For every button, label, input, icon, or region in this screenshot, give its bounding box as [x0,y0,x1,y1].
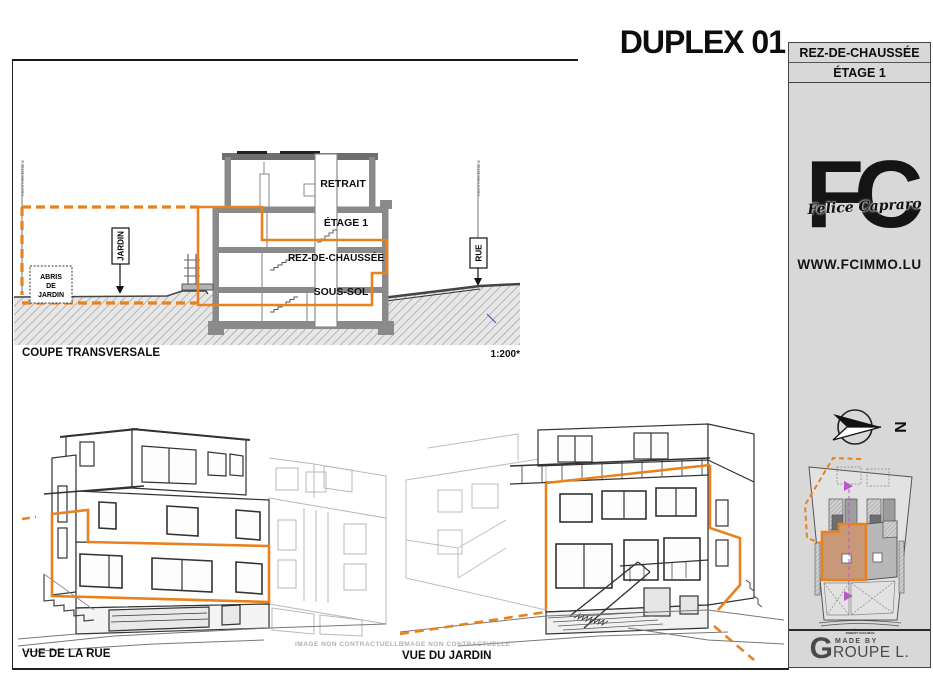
section-caption: COUPE TRANSVERSALE [22,347,160,359]
groupe-l-logo: G MADE BY ROUPE L. [789,629,930,667]
garden-shed-box: ABRIS DE JARDIN [30,266,72,303]
street-annotation: RUE [470,238,487,286]
garden-view-watermark: IMAGE NON CONTRACTUELLE [402,641,511,648]
duplex-unit-footprint [822,524,866,580]
groupe-l-initial: G [810,637,833,661]
main-building [44,429,269,634]
fc-website: WWW.FCIMMO.LU [789,257,930,272]
site-plan-drawing: Boulevard ROBERT SCHUMAN [799,455,921,635]
floor-label-soussol: SOUS-SOL [314,286,369,298]
street-view-caption: VUE DE LA RUE [22,648,110,660]
page-title: DUPLEX 01 [620,26,785,58]
street-label: RUE [475,244,484,262]
floor-label-rdc: REZ-DE-CHAUSSÉE [288,251,384,264]
section-scale: 1:200* [468,349,520,360]
floor-labels-box: REZ-DE-CHAUSSÉE ÉTAGE 1 [789,43,930,83]
cross-section-drawing: LIMITE PARCELLAIRE LIMITE PARCELLAIRE [12,62,788,354]
fc-logo-initials: FC [806,147,914,243]
fc-logo: FC Felice Capraro WWW.FCIMMO.LU [789,151,930,301]
street-view-watermark: IMAGE NON CONTRACTUELLE [295,641,404,648]
compass-north-label: N [891,421,908,433]
garden-view-caption: VUE DU JARDIN [402,650,491,662]
garden-label: JARDIN [117,231,126,261]
floor-label-rez: REZ-DE-CHAUSSÉE [789,43,930,63]
title-block-sidebar: REZ-DE-CHAUSSÉE ÉTAGE 1 FC Felice Caprar… [788,42,931,668]
floor-label-retrait: RETRAIT [320,178,366,190]
neighbour-building-faint [406,434,546,610]
shed-line-1: ABRIS [40,274,62,281]
garden-annotation: JARDIN [112,228,129,294]
street-view-drawing [14,396,394,652]
garden-view-drawing [398,420,788,662]
floor-label-etage1: ÉTAGE 1 [789,63,930,82]
boundary-label-left: LIMITE PARCELLAIRE [21,159,25,196]
north-compass-icon: N [807,403,917,451]
shed-line-2: DE [46,283,56,290]
floor-label-etage1: ÉTAGE 1 [324,216,368,229]
boundary-label-right: LIMITE PARCELLAIRE [477,159,481,196]
neighbour-building-faint [269,458,386,636]
neighbour-unit-footprint [866,521,897,580]
shed-line-3: JARDIN [38,292,64,299]
groupe-l-name: ROUPE L. [833,645,909,661]
